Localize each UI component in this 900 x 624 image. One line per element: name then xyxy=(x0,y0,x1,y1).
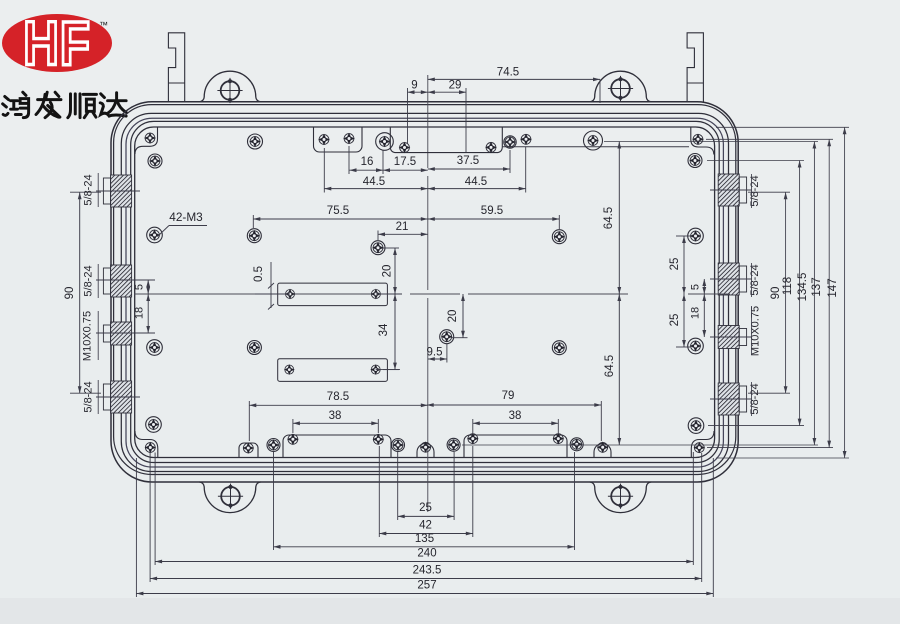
svg-text:59.5: 59.5 xyxy=(481,205,503,217)
svg-text:™: ™ xyxy=(99,20,108,30)
svg-text:137: 137 xyxy=(811,277,823,296)
svg-text:5/8-24: 5/8-24 xyxy=(749,264,761,295)
svg-text:79: 79 xyxy=(502,390,515,402)
svg-text:37.5: 37.5 xyxy=(457,155,479,167)
svg-text:5/8-24: 5/8-24 xyxy=(749,383,761,414)
svg-text:16: 16 xyxy=(361,156,374,168)
svg-text:38: 38 xyxy=(329,410,342,422)
svg-text:5/8-24: 5/8-24 xyxy=(83,381,95,412)
svg-text:44.5: 44.5 xyxy=(363,176,385,188)
svg-text:21: 21 xyxy=(396,221,409,233)
svg-text:M10X0.75: M10X0.75 xyxy=(82,311,94,361)
svg-text:240: 240 xyxy=(417,548,436,560)
svg-text:18: 18 xyxy=(134,307,146,319)
svg-text:25: 25 xyxy=(669,314,681,327)
svg-text:5/8-24: 5/8-24 xyxy=(83,265,95,296)
svg-text:25: 25 xyxy=(669,258,681,271)
svg-text:20: 20 xyxy=(382,265,394,278)
svg-text:257: 257 xyxy=(417,580,436,592)
svg-text:135: 135 xyxy=(415,533,434,545)
svg-text:42: 42 xyxy=(419,520,432,532)
svg-text:20: 20 xyxy=(447,310,459,323)
svg-text:25: 25 xyxy=(419,502,432,514)
svg-text:29: 29 xyxy=(449,80,462,92)
svg-text:5: 5 xyxy=(134,284,146,290)
svg-text:75.5: 75.5 xyxy=(327,205,349,217)
svg-text:0.5: 0.5 xyxy=(253,266,265,282)
svg-text:134.5: 134.5 xyxy=(797,273,809,302)
svg-text:17.5: 17.5 xyxy=(394,156,416,168)
svg-text:90: 90 xyxy=(64,287,76,300)
svg-text:147: 147 xyxy=(827,278,839,297)
svg-text:34: 34 xyxy=(378,323,390,336)
svg-text:42-M3: 42-M3 xyxy=(169,210,203,224)
svg-text:90: 90 xyxy=(770,287,782,300)
svg-text:HF: HF xyxy=(23,8,91,78)
svg-text:5/8-24: 5/8-24 xyxy=(83,174,95,205)
svg-text:9: 9 xyxy=(411,80,417,92)
svg-text:18: 18 xyxy=(690,307,702,319)
svg-text:5: 5 xyxy=(690,284,702,290)
svg-text:9.5: 9.5 xyxy=(427,347,443,359)
svg-text:64.5: 64.5 xyxy=(603,207,615,229)
svg-text:243.5: 243.5 xyxy=(413,565,442,577)
svg-text:38: 38 xyxy=(509,410,522,422)
svg-text:118: 118 xyxy=(782,277,794,295)
svg-text:64.5: 64.5 xyxy=(604,355,616,377)
svg-text:5/8-24: 5/8-24 xyxy=(749,175,761,206)
svg-text:74.5: 74.5 xyxy=(497,67,519,79)
svg-text:44.5: 44.5 xyxy=(465,176,487,188)
svg-text:78.5: 78.5 xyxy=(327,391,349,403)
